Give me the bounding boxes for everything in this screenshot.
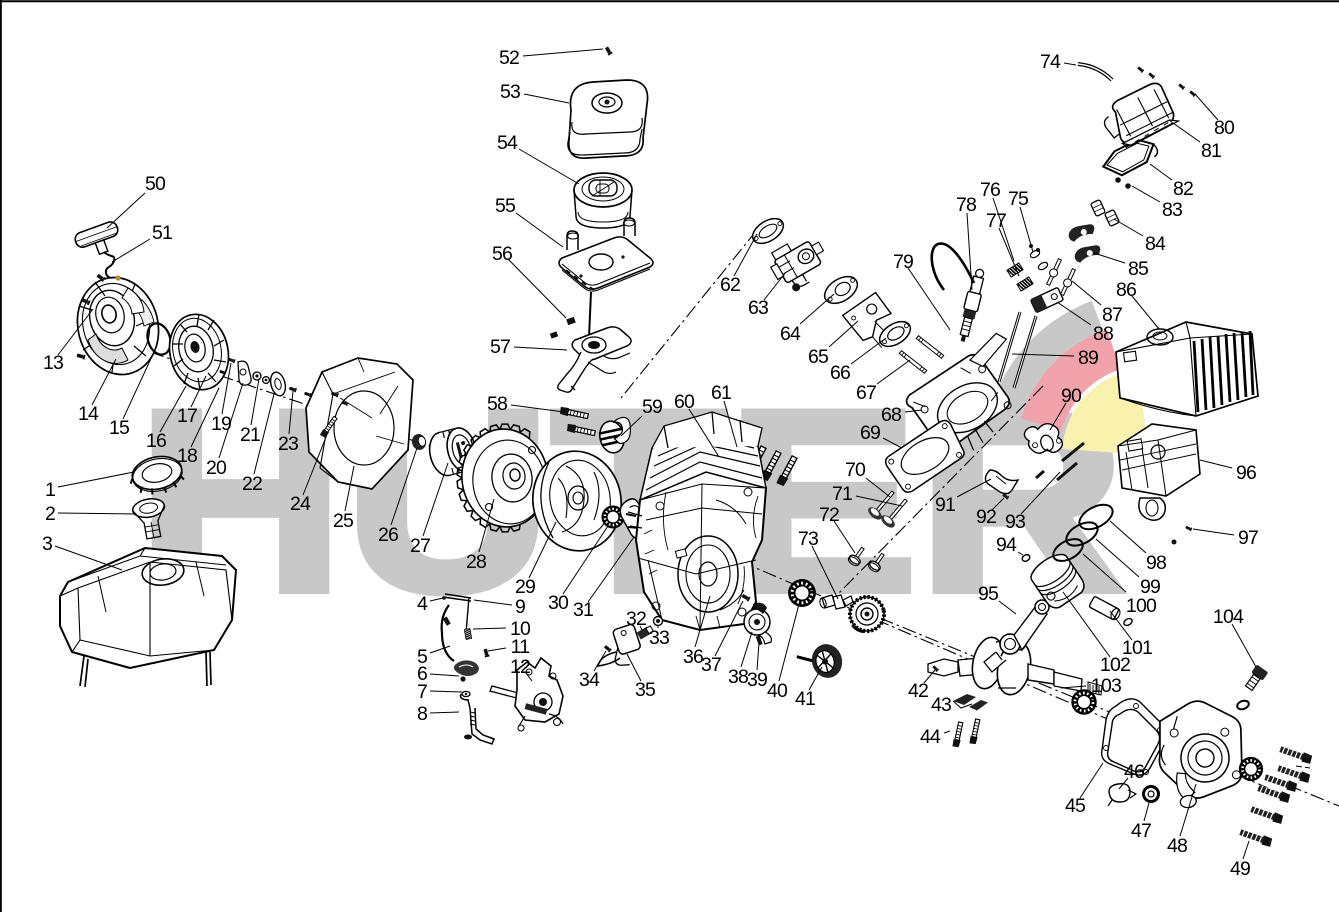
- svg-text:61: 61: [711, 382, 731, 404]
- svg-text:39: 39: [747, 669, 767, 691]
- svg-text:48: 48: [1167, 835, 1187, 857]
- svg-text:78: 78: [956, 194, 976, 216]
- svg-text:33: 33: [649, 627, 669, 649]
- svg-text:15: 15: [109, 417, 130, 439]
- svg-text:17: 17: [177, 405, 197, 427]
- svg-text:49: 49: [1230, 858, 1250, 880]
- svg-text:57: 57: [490, 336, 510, 358]
- svg-text:55: 55: [495, 195, 516, 217]
- svg-text:1: 1: [45, 479, 55, 501]
- svg-text:80: 80: [1214, 117, 1235, 139]
- svg-text:69: 69: [860, 422, 880, 444]
- svg-text:70: 70: [845, 459, 866, 481]
- svg-text:95: 95: [978, 583, 999, 605]
- svg-text:52: 52: [499, 47, 519, 69]
- svg-text:50: 50: [145, 173, 166, 195]
- svg-text:81: 81: [1201, 140, 1221, 162]
- svg-text:88: 88: [1093, 323, 1113, 345]
- svg-text:82: 82: [1173, 178, 1193, 200]
- svg-text:84: 84: [1145, 233, 1166, 255]
- svg-text:30: 30: [548, 592, 569, 614]
- svg-text:97: 97: [1238, 527, 1258, 549]
- svg-text:41: 41: [795, 688, 815, 710]
- svg-text:86: 86: [1116, 279, 1136, 301]
- svg-text:79: 79: [893, 251, 913, 273]
- svg-text:9: 9: [515, 596, 525, 618]
- svg-text:23: 23: [278, 433, 298, 455]
- svg-text:54: 54: [497, 132, 518, 154]
- svg-text:43: 43: [931, 694, 951, 716]
- svg-text:104: 104: [1213, 606, 1244, 628]
- svg-text:14: 14: [78, 403, 99, 425]
- svg-text:26: 26: [378, 524, 398, 546]
- svg-text:31: 31: [573, 599, 593, 621]
- svg-text:45: 45: [1065, 795, 1086, 817]
- svg-text:92: 92: [976, 506, 996, 528]
- svg-text:85: 85: [1128, 258, 1149, 280]
- svg-text:34: 34: [579, 669, 600, 691]
- svg-text:21: 21: [240, 424, 260, 446]
- svg-text:75: 75: [1008, 188, 1029, 210]
- svg-text:103: 103: [1091, 675, 1121, 697]
- svg-text:74: 74: [1040, 51, 1061, 73]
- svg-text:11: 11: [511, 636, 530, 658]
- svg-text:18: 18: [177, 445, 197, 467]
- svg-text:35: 35: [635, 679, 656, 701]
- svg-text:46: 46: [1124, 761, 1144, 783]
- svg-text:53: 53: [500, 81, 520, 103]
- svg-text:98: 98: [1146, 552, 1166, 574]
- svg-text:63: 63: [748, 297, 768, 319]
- svg-text:44: 44: [920, 726, 941, 748]
- svg-text:93: 93: [1005, 511, 1025, 533]
- svg-text:60: 60: [674, 391, 695, 413]
- svg-text:38: 38: [728, 666, 748, 688]
- svg-text:16: 16: [146, 430, 166, 452]
- svg-text:67: 67: [856, 382, 876, 404]
- svg-text:71: 71: [832, 483, 852, 505]
- svg-text:3: 3: [42, 533, 52, 555]
- svg-text:28: 28: [466, 551, 486, 573]
- svg-text:102: 102: [1100, 654, 1130, 676]
- svg-text:56: 56: [492, 243, 512, 265]
- svg-text:90: 90: [1061, 385, 1082, 407]
- svg-text:20: 20: [206, 457, 227, 479]
- svg-text:22: 22: [242, 473, 262, 495]
- svg-text:59: 59: [642, 396, 662, 418]
- svg-text:37: 37: [701, 654, 721, 676]
- svg-text:64: 64: [780, 323, 801, 345]
- svg-text:19: 19: [211, 413, 231, 435]
- svg-text:73: 73: [798, 528, 818, 550]
- svg-text:29: 29: [515, 576, 535, 598]
- svg-text:7: 7: [417, 681, 427, 703]
- svg-text:62: 62: [720, 274, 740, 296]
- svg-text:2: 2: [45, 503, 55, 525]
- svg-text:24: 24: [290, 493, 311, 515]
- svg-text:68: 68: [881, 404, 901, 426]
- svg-text:89: 89: [1078, 347, 1098, 369]
- svg-text:51: 51: [152, 222, 172, 244]
- svg-text:66: 66: [830, 362, 850, 384]
- svg-text:42: 42: [908, 680, 928, 702]
- svg-text:40: 40: [767, 680, 788, 702]
- svg-text:47: 47: [1131, 820, 1151, 842]
- svg-text:8: 8: [417, 703, 427, 725]
- svg-text:32: 32: [626, 608, 646, 630]
- svg-text:13: 13: [43, 352, 63, 374]
- svg-text:12: 12: [510, 656, 530, 678]
- svg-text:94: 94: [996, 534, 1017, 556]
- svg-text:83: 83: [1162, 199, 1182, 221]
- svg-text:4: 4: [417, 593, 428, 615]
- svg-text:25: 25: [333, 510, 354, 532]
- svg-text:77: 77: [986, 210, 1006, 232]
- svg-text:96: 96: [1236, 462, 1256, 484]
- svg-text:65: 65: [808, 346, 829, 368]
- svg-text:58: 58: [487, 393, 507, 415]
- svg-text:100: 100: [1126, 595, 1157, 617]
- svg-text:72: 72: [819, 504, 839, 526]
- svg-text:91: 91: [935, 494, 955, 516]
- svg-text:76: 76: [980, 179, 1000, 201]
- svg-text:27: 27: [410, 535, 430, 557]
